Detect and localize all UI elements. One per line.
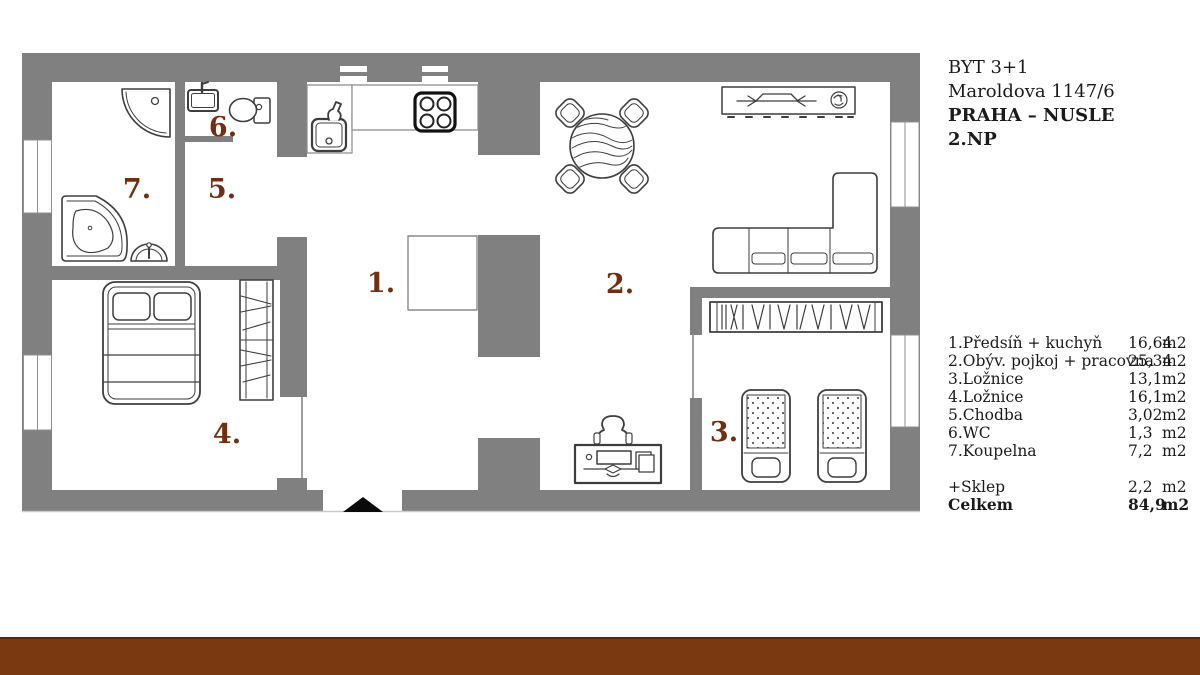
room-label-3: 3. xyxy=(710,417,738,448)
legend-row: 1.Předsíň + kuchyň 16,64 m2 xyxy=(948,334,1193,352)
room-area: 16,64 xyxy=(1128,334,1162,352)
legend-row: 2.Obýv. pojkoj + pracovna 25,34 m2 xyxy=(948,352,1193,370)
desk-chair-icon xyxy=(594,416,632,447)
room-name: 7.Koupelna xyxy=(948,442,1128,460)
pantry-square xyxy=(408,236,477,310)
sofa-icon xyxy=(713,173,877,273)
room-label-2: 2. xyxy=(606,269,634,300)
title-block: BYT 3+1 Maroldova 1147/6 PRAHA – NUSLE 2… xyxy=(948,56,1188,152)
wardrobe-icon xyxy=(710,302,882,332)
room-area: 7,2 xyxy=(1128,442,1162,460)
floor-plan: 1. 2. 3. 4. 5. 6. 7. xyxy=(0,0,940,560)
area-unit: m2 xyxy=(1162,496,1192,514)
room-area: 16,1 xyxy=(1128,388,1162,406)
legend-row: 6.WC 1,3 m2 xyxy=(948,424,1193,442)
room-area: 13,1 xyxy=(1128,370,1162,388)
street-address: Maroldova 1147/6 xyxy=(948,80,1188,104)
room-label-7: 7. xyxy=(123,174,151,205)
room-name: 3.Ložnice xyxy=(948,370,1128,388)
window xyxy=(891,122,919,207)
stove-icon xyxy=(415,93,455,131)
sideboard-icon xyxy=(722,87,855,117)
window xyxy=(24,355,52,430)
room-label-6: 6. xyxy=(209,112,237,143)
legend-row: 7.Koupelna 7,2 m2 xyxy=(948,442,1193,460)
room-name: +Sklep xyxy=(948,478,1128,496)
room-name: 5.Chodba xyxy=(948,406,1128,424)
room-name: 6.WC xyxy=(948,424,1128,442)
room-area: 3,02 xyxy=(1128,406,1162,424)
area-unit: m2 xyxy=(1162,388,1192,406)
area-unit: m2 xyxy=(1162,478,1192,496)
room-area: 2,2 xyxy=(1128,478,1162,496)
area-unit: m2 xyxy=(1162,370,1192,388)
single-bed-icon xyxy=(818,390,866,482)
single-bed-icon xyxy=(742,390,790,482)
bottom-brand-bar xyxy=(0,637,1200,675)
city-district: PRAHA – NUSLE xyxy=(948,104,1188,128)
bathtub-icon xyxy=(62,196,127,261)
apartment-type: BYT 3+1 xyxy=(948,56,1188,80)
legend-row-total: Celkem 84,9 m2 xyxy=(948,496,1193,514)
floor-number: 2.NP xyxy=(948,128,1188,152)
room-label-1: 1. xyxy=(367,268,395,299)
dining-table-icon xyxy=(570,114,634,178)
desk-icon xyxy=(575,445,661,483)
legend-row: 4.Ložnice 16,1 m2 xyxy=(948,388,1193,406)
legend-row: 3.Ložnice 13,1 m2 xyxy=(948,370,1193,388)
washbasin-icon xyxy=(131,243,167,261)
room-name: 2.Obýv. pojkoj + pracovna xyxy=(948,352,1128,370)
area-unit: m2 xyxy=(1162,406,1192,424)
room-area: 25,34 xyxy=(1128,352,1162,370)
room-area: 1,3 xyxy=(1128,424,1162,442)
double-bed-icon xyxy=(103,282,200,404)
area-unit: m2 xyxy=(1162,442,1192,460)
room-label-4: 4. xyxy=(213,419,241,450)
wc-sink-icon xyxy=(188,82,218,111)
legend-row: 5.Chodba 3,02 m2 xyxy=(948,406,1193,424)
room-label-5: 5. xyxy=(208,174,236,205)
floor-plan-page: 1. 2. 3. 4. 5. 6. 7. BYT 3+1 Maroldova 1… xyxy=(0,0,1200,675)
total-area: 84,9 xyxy=(1128,496,1162,514)
total-label: Celkem xyxy=(948,496,1128,514)
window xyxy=(891,335,919,427)
room-legend: 1.Předsíň + kuchyň 16,64 m2 2.Obýv. pojk… xyxy=(948,334,1193,514)
wardrobe-icon xyxy=(240,280,273,400)
room-name: 1.Předsíň + kuchyň xyxy=(948,334,1128,352)
area-unit: m2 xyxy=(1162,352,1192,370)
area-unit: m2 xyxy=(1162,334,1192,352)
area-unit: m2 xyxy=(1162,424,1192,442)
shower-icon xyxy=(122,89,170,137)
window xyxy=(24,140,52,213)
legend-row-sklep: +Sklep 2,2 m2 xyxy=(948,478,1193,496)
legend-gap xyxy=(948,460,1193,478)
room-name: 4.Ložnice xyxy=(948,388,1128,406)
